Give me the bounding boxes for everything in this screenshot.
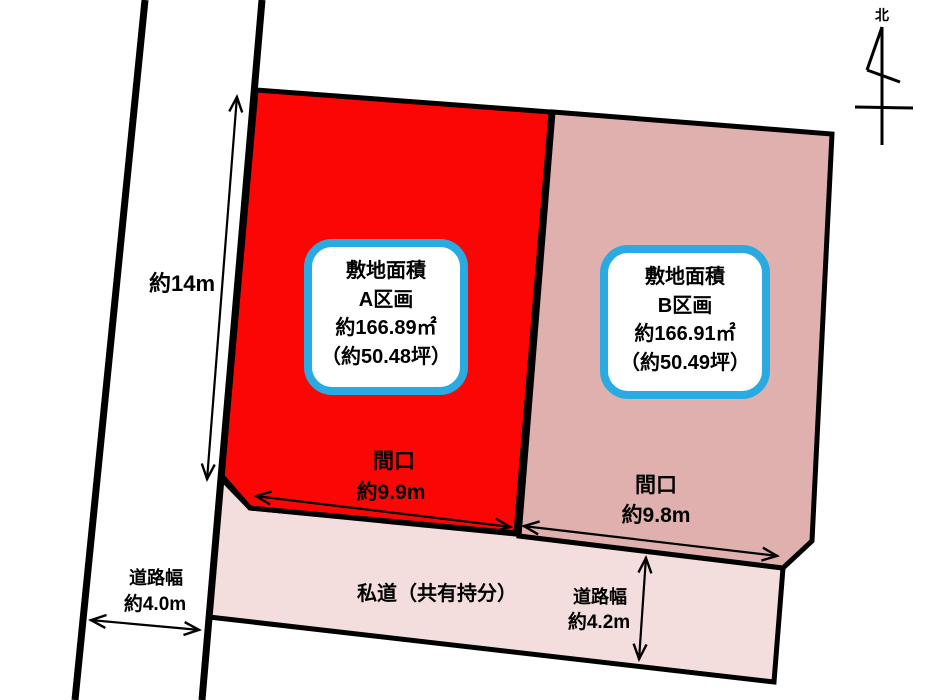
frontage-b-label-line1: 間口 <box>635 474 677 497</box>
parcel-a-info-line4: （約50.48坪） <box>321 344 451 368</box>
road-length-label: 約14m <box>149 271 215 296</box>
parcel-a-info-line1: 敷地面積 <box>346 258 427 282</box>
road-width-left-label-line2: 約4.0m <box>124 592 186 615</box>
plot-diagram: 北 敷地面積 A区画 約166.89㎡ （約50.48坪） 敷地面積 B区画 約… <box>0 0 939 700</box>
parcel-b-info-line2: B区画 <box>658 295 712 317</box>
dimension-arrow-road-width-left <box>90 620 200 630</box>
private-road-label: 私道（共有持分） <box>357 581 517 605</box>
parcel-a-info-box: 敷地面積 A区画 約166.89㎡ （約50.48坪） <box>308 243 464 391</box>
frontage-a-label-line2: 約9.9m <box>357 480 426 504</box>
north-arrow-icon <box>855 27 913 145</box>
north-label: 北 <box>875 7 889 23</box>
parcel-b-info-line3: 約166.91㎡ <box>634 321 735 345</box>
parcel-b-info-box: 敷地面積 B区画 約166.91㎡ （約50.49坪） <box>604 249 766 395</box>
road-width-bottom-label-line1: 道路幅 <box>573 586 627 607</box>
road-width-left-label-line1: 道路幅 <box>129 567 183 588</box>
frontage-b-label-line2: 約9.8m <box>622 503 691 527</box>
road-width-bottom-label-line2: 約4.2m <box>568 610 630 633</box>
parcel-a-info-line3: 約166.89㎡ <box>335 315 436 339</box>
parcel-b-info-line1: 敷地面積 <box>645 264 726 288</box>
parcel-b-info-line4: （約50.49坪） <box>620 350 750 374</box>
parcel-a-info-line2: A区画 <box>359 289 413 311</box>
frontage-a-label-line1: 間口 <box>373 450 415 473</box>
